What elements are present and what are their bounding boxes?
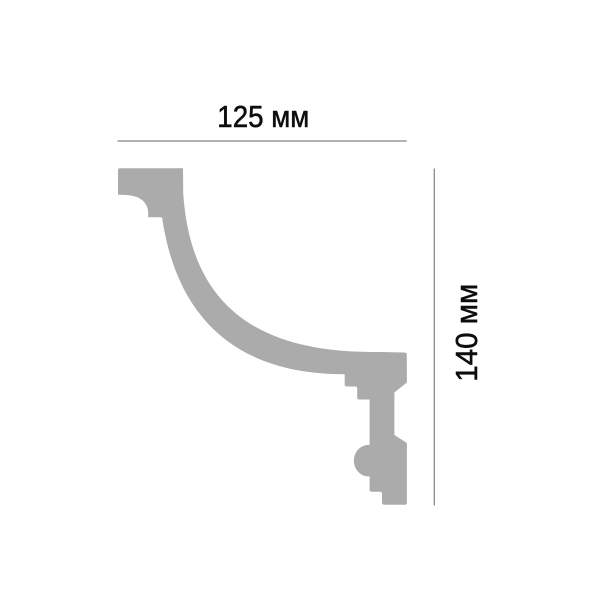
- svg-text:140 мм: 140 мм: [449, 284, 484, 382]
- svg-text:125 мм: 125 мм: [217, 99, 309, 134]
